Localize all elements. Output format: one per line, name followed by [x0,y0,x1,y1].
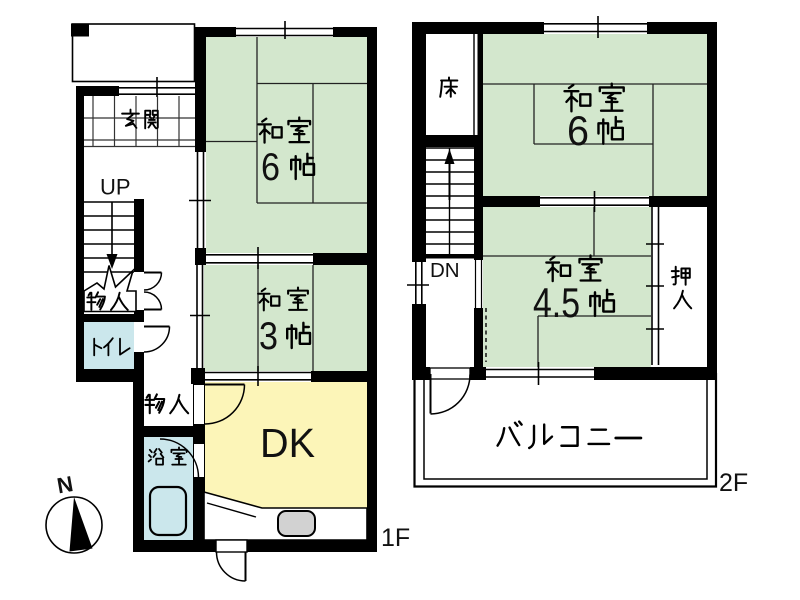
svg-text:6: 6 [261,146,280,189]
svg-text:2F: 2F [719,469,748,497]
svg-text:6: 6 [567,107,589,154]
svg-text:DK: DK [260,420,315,466]
svg-text:UP: UP [100,175,131,200]
svg-text:3: 3 [259,315,278,358]
svg-text:DN: DN [430,259,460,282]
svg-text:4.5: 4.5 [533,279,580,326]
svg-text:1F: 1F [381,524,410,552]
